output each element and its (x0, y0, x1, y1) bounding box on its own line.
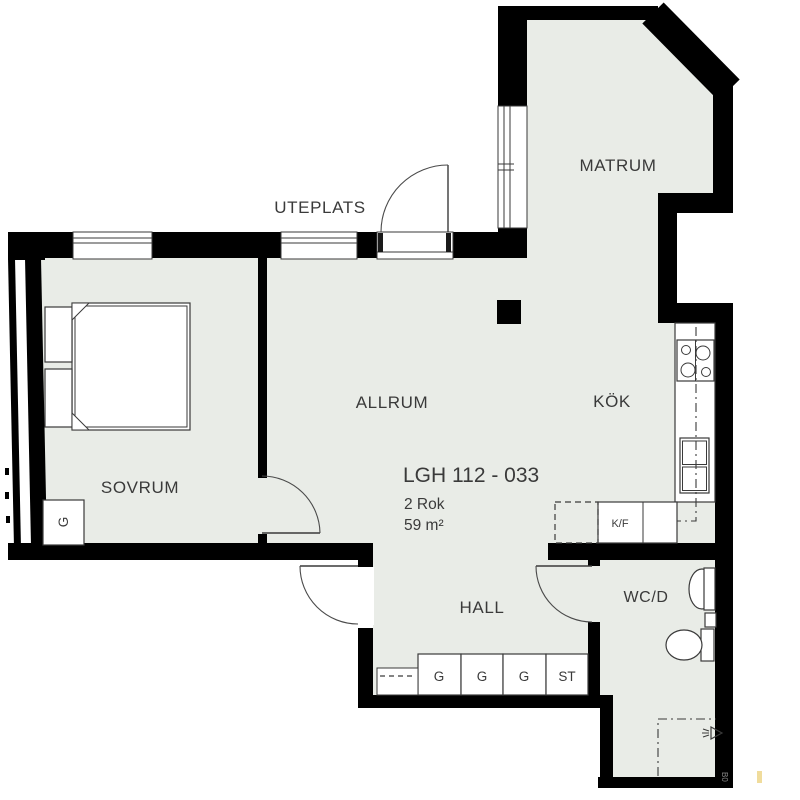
open-shelf (377, 668, 418, 695)
window-sovrum (73, 232, 152, 259)
wall (258, 533, 267, 544)
wall-tick (6, 516, 10, 523)
cistern-box (705, 613, 716, 627)
room-label-matrum: MATRUM (580, 156, 657, 175)
closet-label: G (434, 669, 445, 684)
window-allrum (281, 232, 357, 259)
wall-tick (5, 468, 9, 475)
apartment-rooms: 2 Rok (404, 496, 445, 513)
window-matrum (498, 106, 527, 228)
kitchen-sink (680, 438, 709, 493)
wc-sink (689, 568, 715, 610)
room-label-uteplats: UTEPLATS (274, 198, 365, 217)
wall (498, 6, 658, 20)
floor-plan-page: G K/F G G G ST (0, 0, 800, 800)
closet-label: G (56, 517, 71, 528)
entry-door (300, 566, 374, 625)
toilet (666, 629, 714, 661)
wall-tick (5, 492, 9, 499)
margin-stamps: B0 (720, 771, 762, 783)
floor-plan-drawing: G K/F G G G ST (0, 0, 800, 800)
wall (715, 560, 733, 788)
fridge-freezer-label: K/F (611, 518, 628, 530)
wall (8, 232, 45, 260)
wall (453, 232, 498, 258)
closet-sovrum: G (43, 500, 84, 545)
wall (360, 695, 613, 708)
closet-label: G (477, 669, 488, 684)
stamp-mark (757, 771, 762, 783)
wall (658, 213, 677, 313)
wall (498, 6, 527, 108)
wall (357, 232, 377, 258)
wall (548, 543, 733, 560)
stamp-text: B0 (720, 772, 729, 782)
wall (658, 193, 733, 213)
closet-label: G (519, 669, 530, 684)
room-label-wcd: WC/D (623, 589, 668, 606)
room-label-sovrum: SOVRUM (101, 478, 179, 497)
wall (258, 258, 267, 479)
wall-outer-leaf (8, 258, 21, 548)
wall (598, 777, 733, 788)
column (497, 300, 521, 324)
patio-door (377, 165, 453, 259)
wall (600, 700, 613, 788)
wall (713, 75, 733, 200)
room-label-hall: HALL (460, 598, 505, 617)
wall (588, 622, 600, 700)
apartment-id: LGH 112 - 033 (403, 464, 539, 487)
closet-label: ST (558, 669, 575, 684)
wall (588, 558, 600, 566)
wall (715, 323, 733, 545)
room-label-allrum: ALLRUM (356, 393, 429, 412)
wall (358, 628, 373, 708)
wall (358, 560, 373, 567)
wall (658, 303, 733, 323)
fridge-freezer: K/F (598, 502, 677, 543)
wall (152, 232, 281, 258)
wall (498, 227, 527, 258)
room-label-kok: KÖK (593, 392, 631, 411)
apartment-area: 59 m² (404, 517, 444, 534)
